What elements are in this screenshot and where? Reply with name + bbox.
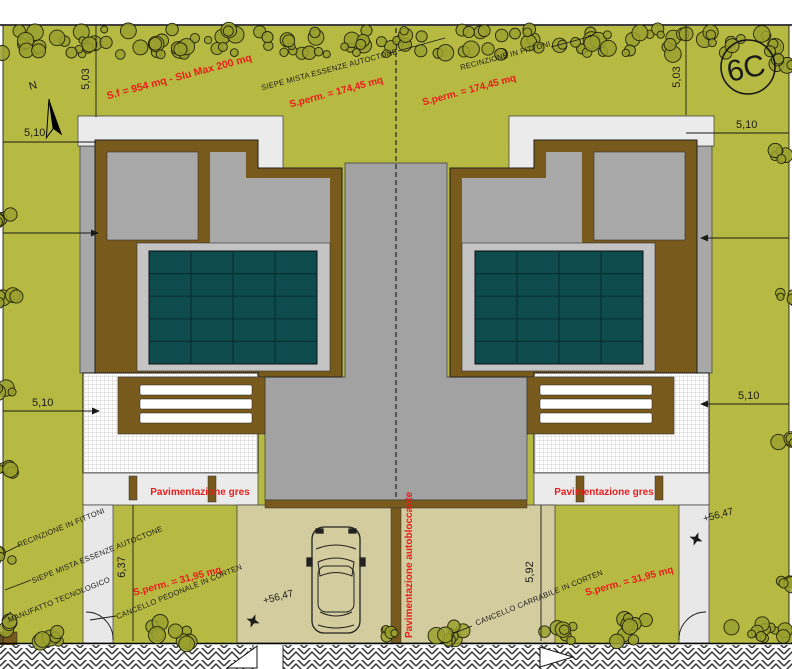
tree-foliage bbox=[51, 625, 64, 638]
tree-foliage bbox=[120, 23, 136, 39]
tree-foliage bbox=[100, 36, 112, 48]
courtyard-wall bbox=[265, 500, 527, 508]
tree-foliage bbox=[101, 26, 108, 33]
tree-foliage bbox=[463, 26, 474, 37]
dim-side-upper-left: 5,10 bbox=[24, 127, 45, 139]
road bbox=[0, 645, 792, 669]
tree-foliage bbox=[510, 28, 521, 39]
tree-foliage bbox=[66, 47, 77, 58]
tree-foliage bbox=[567, 636, 576, 645]
tree-foliage bbox=[174, 43, 187, 56]
tree-foliage bbox=[353, 49, 361, 57]
tree-foliage bbox=[280, 48, 288, 56]
tree-foliage bbox=[438, 627, 454, 643]
tree-foliage bbox=[400, 27, 408, 35]
tree-foliage bbox=[149, 38, 162, 51]
site-plan-sheet: N 6C S.f = 954 mq - Slu Max 200 mq S.per… bbox=[0, 0, 792, 669]
annotation-interlocking-paving: Pavimentazione autobloccante bbox=[404, 491, 415, 638]
tree-foliage bbox=[168, 624, 182, 638]
dim-front-garden-right: 5,92 bbox=[524, 561, 536, 582]
tree-foliage bbox=[777, 155, 786, 164]
tree-foliage bbox=[622, 49, 629, 56]
driveway-divider-fence bbox=[391, 508, 401, 643]
annotation-gres-left: Pavimentazione gres bbox=[150, 487, 250, 498]
tree-foliage bbox=[32, 44, 46, 58]
tree-foliage bbox=[628, 635, 638, 645]
tree-foliage bbox=[133, 40, 148, 55]
tree-foliage bbox=[3, 462, 18, 477]
dim-plot-top-left: 5,03 bbox=[80, 68, 92, 89]
tree-foliage bbox=[415, 45, 427, 57]
tree-foliage bbox=[314, 47, 323, 56]
site-plan-drawing: N 6C S.f = 954 mq - Slu Max 200 mq S.per… bbox=[0, 0, 792, 669]
tree-foliage bbox=[754, 26, 771, 43]
tree-foliage bbox=[0, 553, 5, 561]
tree-foliage bbox=[748, 630, 756, 638]
tree-foliage bbox=[632, 25, 648, 41]
tree-foliage bbox=[223, 26, 233, 36]
dim-plot-top-right: 5,03 bbox=[671, 66, 683, 87]
tree-foliage bbox=[482, 43, 494, 55]
tree-foliage bbox=[149, 627, 166, 644]
tree-foliage bbox=[495, 29, 508, 42]
tree-foliage bbox=[262, 31, 273, 42]
dim-side-lower-left: 5,10 bbox=[32, 397, 53, 409]
tree-foliage bbox=[82, 37, 97, 52]
tree-foliage bbox=[35, 632, 51, 648]
tree-foliage bbox=[437, 45, 453, 61]
tree-foliage bbox=[391, 630, 398, 637]
tree-foliage bbox=[156, 50, 165, 59]
tree-foliage bbox=[777, 630, 790, 643]
car-top-view bbox=[307, 527, 365, 633]
tree-foliage bbox=[8, 388, 16, 396]
tree-foliage bbox=[610, 634, 625, 649]
tree-foliage bbox=[706, 30, 715, 39]
tree-foliage bbox=[787, 60, 792, 69]
tree-foliage bbox=[664, 39, 676, 51]
dim-side-upper-right: 5,10 bbox=[736, 119, 757, 131]
tree-foliage bbox=[779, 579, 788, 588]
tree-foliage bbox=[116, 50, 126, 60]
tree-foliage bbox=[463, 41, 480, 58]
tree-foliage bbox=[310, 27, 320, 37]
dim-side-lower-right: 5,10 bbox=[738, 390, 759, 402]
tree-foliage bbox=[622, 619, 637, 634]
tree-foliage bbox=[478, 25, 490, 37]
tree-foliage bbox=[323, 51, 330, 58]
tree-foliage bbox=[756, 632, 766, 642]
tree-foliage bbox=[724, 620, 739, 635]
annotation-gres-right: Pavimentazione gres bbox=[554, 487, 654, 498]
tree-foliage bbox=[657, 31, 664, 38]
tree-foliage bbox=[179, 636, 195, 652]
tree-foliage bbox=[539, 626, 551, 638]
tree-foliage bbox=[8, 556, 17, 565]
tree-foliage bbox=[166, 23, 178, 35]
tree-foliage bbox=[341, 43, 349, 51]
tree-foliage bbox=[777, 293, 784, 300]
tree-foliage bbox=[523, 28, 532, 37]
tree-foliage bbox=[356, 39, 366, 49]
tree-foliage bbox=[603, 31, 611, 39]
tree-foliage bbox=[283, 35, 295, 47]
tree-foliage bbox=[4, 208, 17, 221]
tree-foliage bbox=[376, 37, 386, 47]
tree-foliage bbox=[600, 40, 616, 56]
tree-foliage bbox=[708, 39, 716, 47]
dim-front-garden-left: 6,37 bbox=[116, 556, 128, 577]
tree-foliage bbox=[218, 42, 227, 51]
tree-foliage bbox=[560, 625, 570, 635]
tree-foliage bbox=[416, 31, 427, 42]
tree-foliage bbox=[571, 37, 581, 47]
tree-foliage bbox=[204, 36, 211, 43]
tree-foliage bbox=[10, 290, 23, 303]
tree-foliage bbox=[49, 30, 65, 46]
